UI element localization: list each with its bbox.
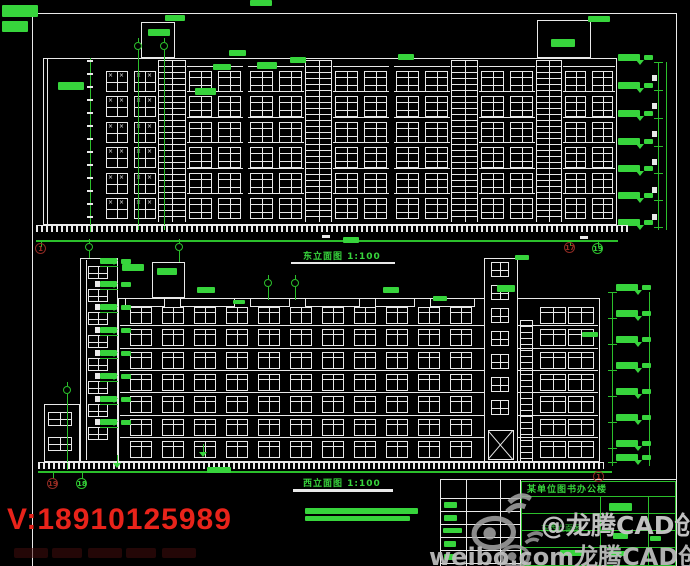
window-transom: [511, 153, 532, 154]
window-transom: [190, 85, 211, 86]
window-transom: [259, 424, 279, 425]
window-mullion: [237, 442, 238, 457]
annotation-blob: [588, 16, 610, 22]
window-mullion: [429, 308, 430, 323]
window-mullion: [553, 330, 554, 345]
window-mullion: [269, 420, 270, 435]
window-transom: [397, 161, 418, 162]
axis-line: [138, 38, 139, 42]
window-mullion: [333, 308, 334, 323]
floor-band-line: [187, 193, 243, 194]
axis-symbol: [85, 243, 93, 251]
window-transom: [336, 161, 357, 162]
floor-band-line: [479, 66, 535, 67]
window-transom: [107, 82, 127, 83]
window-transom: [227, 446, 247, 447]
window-transom: [190, 136, 211, 137]
window-transom: [482, 77, 503, 78]
annotation-blob: [290, 57, 306, 63]
window-transom: [511, 102, 532, 103]
dimension-dash: [652, 159, 657, 165]
window-transom: [566, 204, 585, 205]
level-text-blob: [644, 220, 653, 225]
window-mullion: [576, 123, 577, 142]
window-transom: [280, 110, 301, 111]
window-transom: [280, 187, 301, 188]
window-transom: [397, 136, 418, 137]
window-mullion: [205, 420, 206, 435]
dimension-tick: [87, 177, 93, 179]
window-transom: [190, 179, 211, 180]
window-transom: [569, 424, 593, 425]
window-transom: [280, 77, 301, 78]
window-mullion: [581, 420, 582, 435]
window-mullion: [141, 397, 142, 412]
dimension-tick: [608, 396, 617, 397]
window-mullion: [333, 442, 334, 457]
window-transom: [482, 128, 503, 129]
annotation-blob: [250, 0, 272, 6]
window-transom: [195, 379, 215, 380]
window-mullion: [201, 123, 202, 142]
window-mullion: [333, 397, 334, 412]
level-text-blob: [644, 166, 653, 171]
level-text-blob: [121, 282, 131, 287]
window-transom: [336, 102, 357, 103]
level-text-blob: [644, 111, 653, 116]
window-mullion: [301, 375, 302, 390]
dimension-tick: [654, 200, 663, 201]
window-mullion: [437, 72, 438, 91]
window-mullion: [269, 442, 270, 457]
level-line: [100, 358, 118, 359]
dimension-tick: [608, 422, 617, 423]
dimension-tick: [608, 448, 617, 449]
window-transom: [566, 85, 585, 86]
floor-band-line: [563, 66, 615, 67]
floor-band-line: [394, 193, 450, 194]
level-symbol-triangle: [634, 394, 642, 399]
window-transom: [89, 365, 107, 366]
window-transom: [251, 110, 272, 111]
glazing-x-mark: ×: [108, 98, 114, 104]
window-transom: [541, 424, 565, 425]
window-mullion: [397, 375, 398, 390]
window-mullion: [429, 375, 430, 390]
window-mullion: [493, 123, 494, 142]
dimension-tick: [608, 292, 617, 293]
floor-band-line: [248, 91, 304, 92]
window-mullion: [237, 375, 238, 390]
window-transom: [541, 401, 565, 402]
window-mullion: [397, 308, 398, 323]
window-mullion: [237, 397, 238, 412]
window-transom: [482, 212, 503, 213]
grid-bubble: 1: [593, 471, 604, 482]
axis-line: [268, 287, 269, 300]
window-transom: [365, 179, 386, 180]
floor-band-line: [333, 117, 389, 118]
window-mullion: [397, 420, 398, 435]
window-transom: [426, 77, 447, 78]
annotation-blob: [433, 296, 447, 301]
title-block-line: [521, 496, 676, 497]
window-transom: [482, 187, 503, 188]
window-mullion: [291, 199, 292, 218]
window-transom: [163, 424, 183, 425]
level-text-blob: [642, 415, 651, 420]
window-transom: [163, 446, 183, 447]
window-mullion: [397, 353, 398, 368]
window-transom: [451, 312, 471, 313]
window-transom: [387, 312, 407, 313]
floor-band-line: [563, 193, 615, 194]
glazing-x-mark: ×: [108, 73, 114, 79]
annotation-blob: [515, 255, 529, 260]
ground-line: [36, 240, 618, 242]
title-underline: [293, 489, 393, 492]
window-transom: [131, 312, 151, 313]
dimension-tick: [608, 370, 617, 371]
floor-band-line: [248, 117, 304, 118]
window-transom: [195, 424, 215, 425]
window-mullion: [262, 72, 263, 91]
level-line: [100, 312, 118, 313]
faded-watermark-mark: [88, 548, 122, 558]
window-transom: [227, 424, 247, 425]
window-mullion: [408, 123, 409, 142]
dimension-tick: [87, 164, 93, 166]
dimension-tick: [87, 99, 93, 101]
glazing-x-mark: ×: [136, 98, 142, 104]
window-transom: [219, 128, 240, 129]
window-transom: [89, 388, 107, 389]
facade-wall-line: [47, 58, 48, 225]
window-transom: [365, 187, 386, 188]
level-line: [100, 381, 118, 382]
window-transom: [365, 102, 386, 103]
level-text-blob: [121, 305, 131, 310]
window-transom: [227, 401, 247, 402]
window-transom: [511, 110, 532, 111]
grid-bubble: 1: [35, 243, 46, 254]
window-transom: [566, 153, 585, 154]
window-transom: [593, 179, 612, 180]
window-transom: [190, 128, 211, 129]
window-transom: [131, 446, 151, 447]
window-transom: [336, 179, 357, 180]
window-transom: [219, 85, 240, 86]
watermark-phone: V:18910125989: [7, 503, 232, 537]
window-mullion: [333, 375, 334, 390]
window-mullion: [376, 174, 377, 193]
grid-bubble: 19: [592, 243, 603, 254]
window-mullion: [365, 375, 366, 390]
window-transom: [593, 85, 612, 86]
window-transom: [365, 110, 386, 111]
window-transom: [107, 158, 127, 159]
window-transom: [251, 153, 272, 154]
window-transom: [387, 401, 407, 402]
window-transom: [566, 110, 585, 111]
window-mullion: [376, 97, 377, 116]
glazing-x-mark: ×: [108, 124, 114, 130]
sheet-frame: [32, 13, 33, 566]
window-transom: [397, 110, 418, 111]
window-mullion: [173, 420, 174, 435]
dimension-tick: [87, 112, 93, 114]
window-transom: [492, 408, 508, 409]
glazing-x-mark: ×: [119, 149, 125, 155]
window-transom: [190, 102, 211, 103]
window-transom: [482, 110, 503, 111]
rooftop-bulkhead: [141, 22, 175, 58]
axis-line: [89, 251, 90, 258]
window-mullion: [173, 353, 174, 368]
window-mullion: [230, 72, 231, 91]
window-mullion: [347, 72, 348, 91]
window-transom: [251, 179, 272, 180]
window-transom: [365, 153, 386, 154]
window-transom: [107, 209, 127, 210]
window-mullion: [437, 199, 438, 218]
level-line: [100, 427, 118, 428]
annotation-blob: [165, 15, 185, 21]
window-transom: [419, 357, 439, 358]
annotation-blob: [197, 287, 215, 293]
window-transom: [566, 212, 585, 213]
level-text-blob: [642, 455, 651, 460]
floor-band-line: [479, 193, 535, 194]
axis-line: [164, 38, 165, 42]
window-mullion: [269, 308, 270, 323]
window-transom: [426, 85, 447, 86]
floor-band-line: [333, 193, 389, 194]
window-transom: [323, 401, 343, 402]
parapet-panel: [180, 298, 235, 307]
window-transom: [259, 334, 279, 335]
glazing-x-mark: ×: [147, 200, 153, 206]
window-mullion: [522, 199, 523, 218]
window-transom: [541, 446, 565, 447]
window-transom: [251, 187, 272, 188]
window-transom: [451, 424, 471, 425]
window-transom: [219, 136, 240, 137]
window-transom: [541, 379, 565, 380]
dimension-tick: [654, 227, 663, 228]
window-transom: [280, 179, 301, 180]
sheet-frame: [32, 13, 677, 14]
parapet-panel: [375, 298, 415, 307]
glazing-x-mark: ×: [147, 98, 153, 104]
dimension-line: [666, 62, 667, 230]
window-transom: [227, 357, 247, 358]
level-symbol-triangle: [110, 260, 118, 265]
window-mullion: [408, 148, 409, 167]
window-transom: [190, 153, 211, 154]
window-transom: [593, 110, 612, 111]
window-mullion: [553, 308, 554, 323]
level-symbol-triangle: [636, 198, 644, 203]
window-mullion: [269, 353, 270, 368]
window-transom: [451, 357, 471, 358]
level-symbol-triangle: [634, 368, 642, 373]
window-transom: [355, 424, 375, 425]
window-mullion: [603, 174, 604, 193]
window-transom: [259, 446, 279, 447]
window-transom: [365, 161, 386, 162]
window-mullion: [201, 97, 202, 116]
stair-strip-mullion: [465, 60, 466, 222]
window-mullion: [437, 174, 438, 193]
window-transom: [541, 334, 565, 335]
window-transom: [291, 357, 311, 358]
window-mullion: [437, 123, 438, 142]
axis-line: [295, 275, 296, 279]
axis-line: [67, 394, 68, 470]
window-mullion: [291, 123, 292, 142]
glazing-x-mark: ×: [136, 124, 142, 130]
glazing-x-mark: ×: [136, 200, 142, 206]
window-mullion: [603, 97, 604, 116]
window-mullion: [553, 375, 554, 390]
window-transom: [251, 85, 272, 86]
window-transom: [482, 179, 503, 180]
window-mullion: [301, 330, 302, 345]
window-transom: [511, 204, 532, 205]
window-transom: [195, 312, 215, 313]
level-symbol-triangle: [634, 342, 642, 347]
axis-symbol: [160, 42, 168, 50]
cad-sheet: ××××××××××××××××××××××××1171919181 东立面图 …: [0, 0, 690, 566]
dimension-dash: [580, 236, 588, 239]
window-transom: [323, 446, 343, 447]
window-mullion: [522, 123, 523, 142]
window-transom: [131, 424, 151, 425]
window-mullion: [493, 72, 494, 91]
window-transom: [89, 411, 107, 412]
window-mullion: [576, 174, 577, 193]
floor-band-line: [479, 142, 535, 143]
window-transom: [387, 379, 407, 380]
window-transom: [387, 446, 407, 447]
window-mullion: [333, 353, 334, 368]
floor-band-line: [248, 168, 304, 169]
window-transom: [451, 446, 471, 447]
dimension-dash: [652, 75, 657, 81]
level-symbol-triangle: [113, 463, 121, 468]
window-mullion: [173, 330, 174, 345]
dimension-dash: [652, 103, 657, 109]
level-line: [203, 444, 204, 452]
window-transom: [323, 424, 343, 425]
floor-band-line: [563, 91, 615, 92]
floor-band-line: [394, 168, 450, 169]
annotation-blob: [233, 300, 245, 304]
level-symbol-triangle: [110, 352, 118, 357]
glazing-x-mark: ×: [136, 175, 142, 181]
watermark-weibo-url-text: weibo.com龙腾CAD创作室: [429, 543, 690, 566]
dimension-dash: [652, 187, 657, 193]
level-symbol-triangle: [634, 420, 642, 425]
level-line: [100, 335, 118, 336]
window-mullion: [141, 308, 142, 323]
window-transom: [419, 446, 439, 447]
level-text-blob: [644, 55, 653, 60]
watermark-weibo-handle-text: @龙腾CAD创作室: [541, 511, 690, 540]
window-transom: [397, 153, 418, 154]
window-transom: [593, 161, 612, 162]
axis-line: [179, 251, 180, 262]
level-symbol-triangle: [636, 144, 644, 149]
window-transom: [280, 212, 301, 213]
window-transom: [219, 161, 240, 162]
window-mullion: [347, 97, 348, 116]
window-mullion: [408, 72, 409, 91]
floor-band-line: [563, 168, 615, 169]
window-transom: [492, 385, 508, 386]
window-mullion: [576, 199, 577, 218]
ground-hatch: [38, 462, 604, 469]
window-mullion: [522, 97, 523, 116]
window-transom: [511, 161, 532, 162]
window-transom: [492, 270, 508, 271]
window-transom: [259, 357, 279, 358]
dimension-tick: [654, 90, 663, 91]
window-transom: [511, 85, 532, 86]
floor-band-line: [479, 117, 535, 118]
window-mullion: [581, 375, 582, 390]
window-mullion: [201, 199, 202, 218]
window-transom: [492, 362, 508, 363]
level-symbol-triangle: [636, 225, 644, 230]
window-transom: [251, 204, 272, 205]
glazing-x-mark: ×: [136, 149, 142, 155]
window-mullion: [269, 330, 270, 345]
window-transom: [593, 187, 612, 188]
window-mullion: [230, 148, 231, 167]
window-mullion: [237, 420, 238, 435]
window-transom: [482, 85, 503, 86]
window-transom: [387, 424, 407, 425]
dimension-tick: [87, 60, 93, 62]
window-mullion: [376, 72, 377, 91]
window-transom: [336, 136, 357, 137]
window-transom: [227, 379, 247, 380]
window-transom: [227, 334, 247, 335]
window-mullion: [230, 123, 231, 142]
window-transom: [195, 446, 215, 447]
axis-line: [268, 275, 269, 279]
glazing-x-mark: ×: [119, 124, 125, 130]
ground-hatch: [36, 225, 628, 232]
window-transom: [227, 312, 247, 313]
axis-symbol: [63, 386, 71, 394]
window-transom: [397, 187, 418, 188]
annotation-blob: [229, 50, 246, 56]
window-mullion: [291, 174, 292, 193]
window-transom: [323, 312, 343, 313]
window-transom: [280, 136, 301, 137]
window-mullion: [603, 72, 604, 91]
window-transom: [541, 312, 565, 313]
window-mullion: [291, 72, 292, 91]
window-transom: [387, 357, 407, 358]
window-mullion: [365, 420, 366, 435]
level-symbol-triangle: [110, 306, 118, 311]
floor-band-line: [563, 142, 615, 143]
dimension-dash: [322, 235, 330, 238]
